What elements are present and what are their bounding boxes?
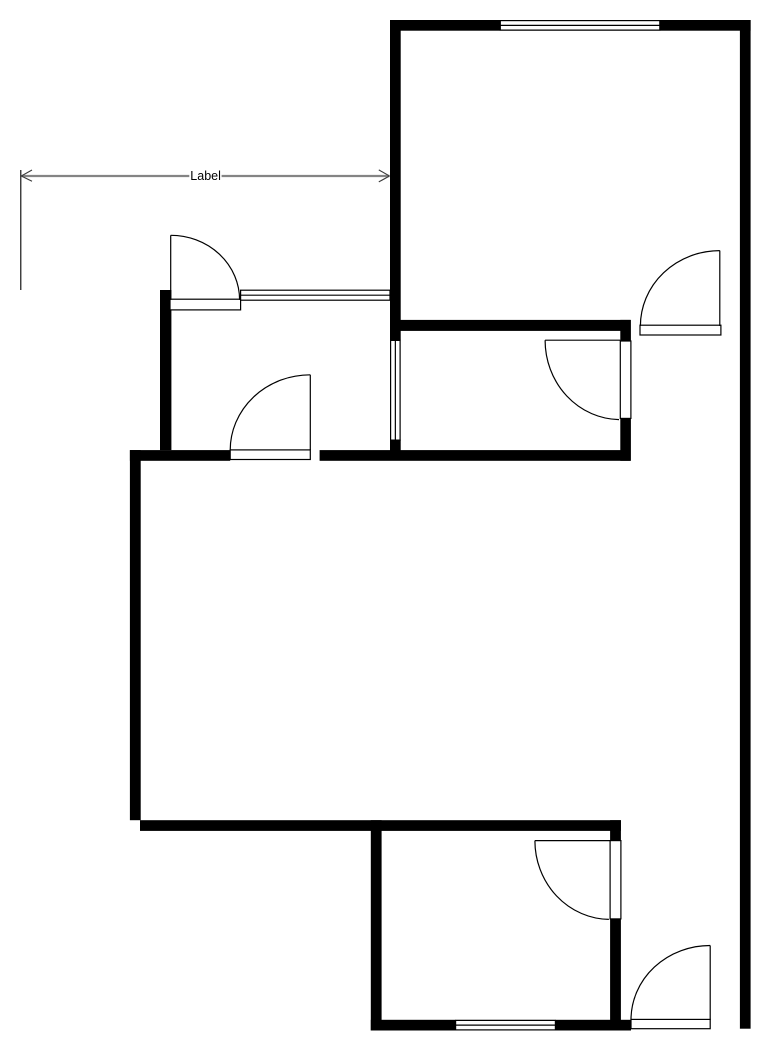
svg-text:Label: Label (190, 169, 221, 183)
